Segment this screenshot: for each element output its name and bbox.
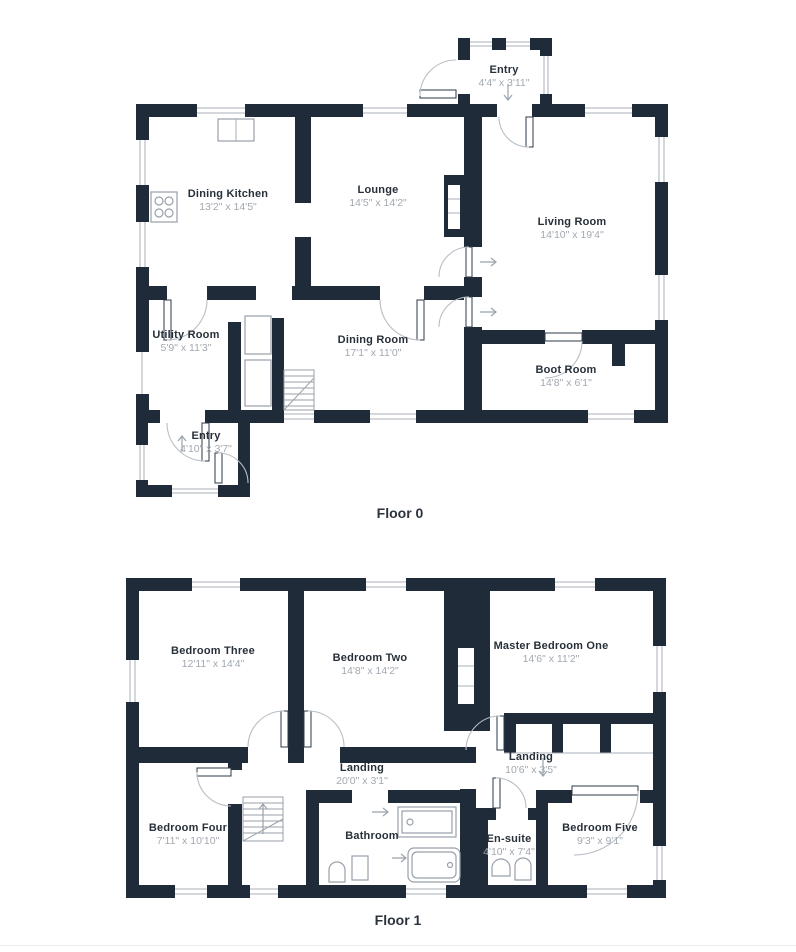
room-label-entry-top: Entry 4'4" x 3'11" xyxy=(479,64,530,89)
room-name: Landing xyxy=(336,762,388,774)
room-label-utility-room: Utility Room 5'9" x 11'3" xyxy=(152,329,219,354)
room-name: En-suite xyxy=(483,833,535,845)
floor0-windows xyxy=(136,38,668,493)
room-label-dining-kitchen: Dining Kitchen 13'2" x 14'5" xyxy=(188,188,268,213)
room-name: Lounge xyxy=(349,184,407,196)
sink-icon xyxy=(492,859,510,876)
toilet-icon xyxy=(515,858,531,880)
room-dims: 12'11" x 14'4" xyxy=(171,658,255,670)
room-name: Landing xyxy=(505,751,557,763)
room-dims: 10'6" x 3'5" xyxy=(505,764,557,776)
room-name: Bedroom Five xyxy=(562,822,638,834)
room-dims: 13'2" x 14'5" xyxy=(188,201,268,213)
room-name: Entry xyxy=(180,430,232,442)
page-bottom-divider xyxy=(0,945,796,946)
room-name: Entry xyxy=(479,64,530,76)
room-name: Dining Kitchen xyxy=(188,188,268,200)
room-label-landing-right: Landing 10'6" x 3'5" xyxy=(505,751,557,776)
sink-icon xyxy=(352,856,368,880)
room-name: Living Room xyxy=(538,216,607,228)
room-dims: 5'9" x 11'3" xyxy=(152,342,219,354)
room-dims: 14'8" x 6'1" xyxy=(535,377,596,389)
room-label-living-room: Living Room 14'10" x 19'4" xyxy=(538,216,607,241)
room-name: Bedroom Three xyxy=(171,645,255,657)
room-dims: 14'6" x 11'2" xyxy=(494,653,609,665)
floor-0-plan xyxy=(0,0,796,530)
floor-1-plan xyxy=(0,560,796,910)
room-dims: 4'10" x 3'7" xyxy=(180,443,232,455)
room-label-dining-room: Dining Room 17'1" x 11'0" xyxy=(338,334,409,359)
room-label-landing-main: Landing 20'0" x 3'1" xyxy=(336,762,388,787)
floor-1-caption: Floor 1 xyxy=(375,912,422,928)
floor-0-caption: Floor 0 xyxy=(377,505,424,521)
room-label-bathroom: Bathroom xyxy=(345,830,399,842)
stove-icon xyxy=(151,192,177,222)
room-dims: 4'10" x 7'4" xyxy=(483,846,535,858)
room-name: Bathroom xyxy=(345,830,399,842)
cupboard-icon xyxy=(245,316,271,354)
room-name: Master Bedroom One xyxy=(494,640,609,652)
room-dims: 7'11" x 10'10" xyxy=(149,835,227,847)
room-label-bedroom-two: Bedroom Two 14'8" x 14'2" xyxy=(333,652,408,677)
room-label-master-bedroom-one: Master Bedroom One 14'6" x 11'2" xyxy=(494,640,609,665)
room-label-bedroom-four: Bedroom Four 7'11" x 10'10" xyxy=(149,822,227,847)
room-dims: 14'5" x 14'2" xyxy=(349,197,407,209)
floor1-walls xyxy=(126,578,666,898)
room-label-lounge: Lounge 14'5" x 14'2" xyxy=(349,184,407,209)
room-name: Boot Room xyxy=(535,364,596,376)
room-label-boot-room: Boot Room 14'8" x 6'1" xyxy=(535,364,596,389)
room-name: Bedroom Four xyxy=(149,822,227,834)
toilet-icon xyxy=(329,862,345,882)
room-name: Bedroom Two xyxy=(333,652,408,664)
room-label-bedroom-three: Bedroom Three 12'11" x 14'4" xyxy=(171,645,255,670)
bath-icon xyxy=(408,848,460,882)
room-dims: 4'4" x 3'11" xyxy=(479,77,530,89)
room-label-entry-bottom: Entry 4'10" x 3'7" xyxy=(180,430,232,455)
room-dims: 20'0" x 3'1" xyxy=(336,775,388,787)
room-dims: 9'3" x 9'1" xyxy=(562,835,638,847)
shower-icon xyxy=(398,807,456,837)
room-name: Dining Room xyxy=(338,334,409,346)
room-label-bedroom-five: Bedroom Five 9'3" x 9'1" xyxy=(562,822,638,847)
room-name: Utility Room xyxy=(152,329,219,341)
floor1-windows xyxy=(126,578,666,898)
floor0-stairs-icon xyxy=(284,370,314,410)
room-label-en-suite: En-suite 4'10" x 7'4" xyxy=(483,833,535,858)
floor1-stairs-icon xyxy=(243,797,283,841)
room-dims: 14'10" x 19'4" xyxy=(538,229,607,241)
cupboard-icon xyxy=(245,360,271,406)
room-dims: 17'1" x 11'0" xyxy=(338,347,409,359)
room-dims: 14'8" x 14'2" xyxy=(333,665,408,677)
floorplan-page: Entry 4'4" x 3'11" Dining Kitchen 13'2" … xyxy=(0,0,796,952)
